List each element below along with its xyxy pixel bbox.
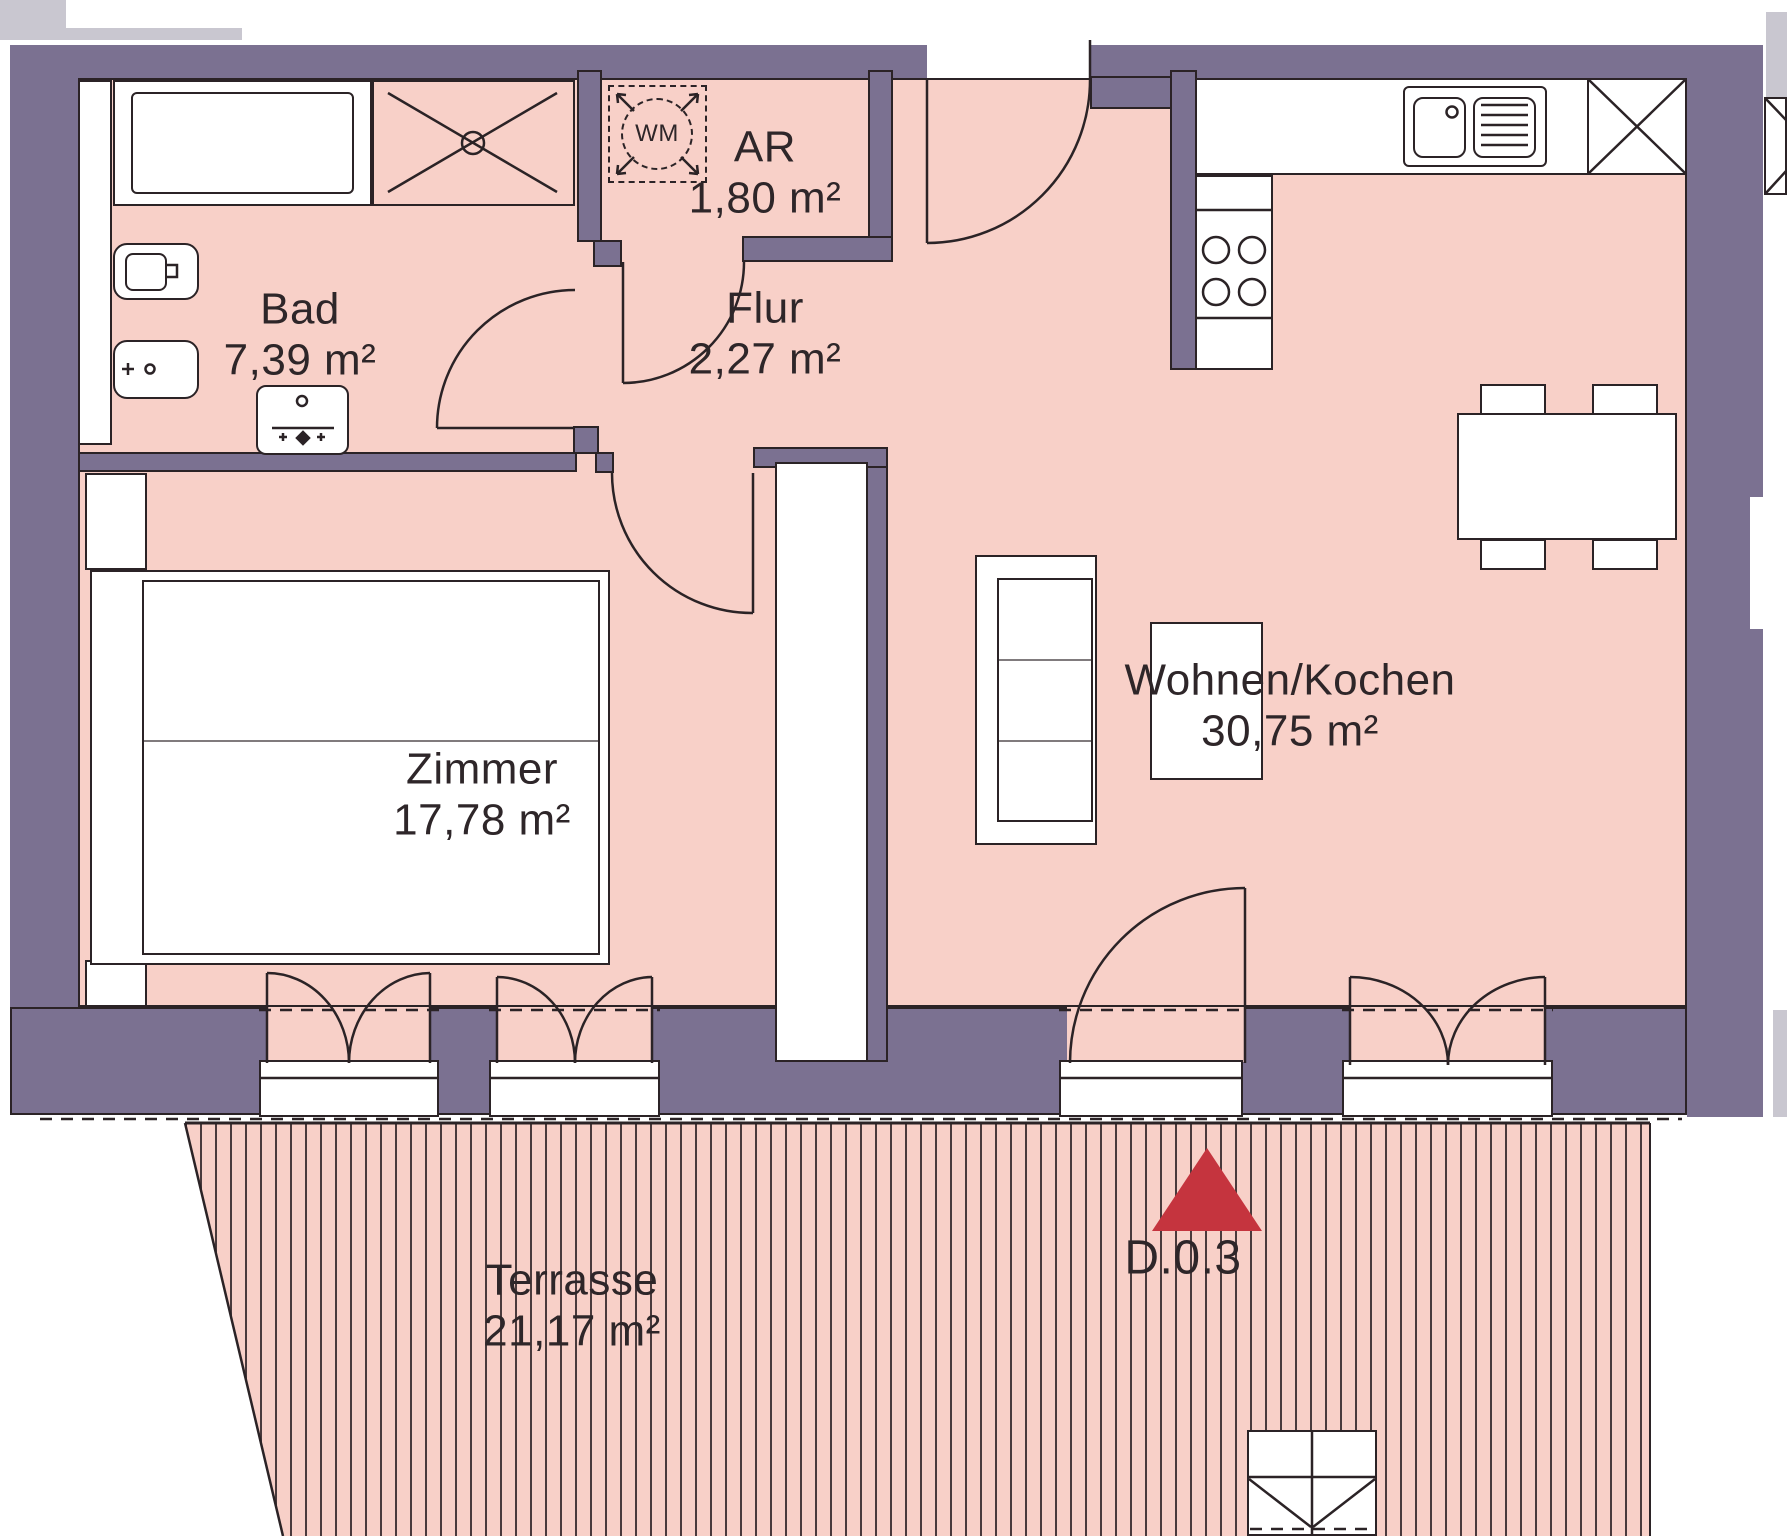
room-name: AR — [689, 122, 842, 173]
room-label-ar: AR 1,80 m² — [689, 122, 842, 223]
washing-machine-label: WM — [635, 120, 679, 148]
room-label-flur: Flur 2,27 m² — [689, 283, 842, 384]
unit-marker-triangle — [1152, 1148, 1262, 1231]
room-label-wohnen-kochen: Wohnen/Kochen 30,75 m² — [1124, 655, 1455, 756]
room-name: Flur — [689, 283, 842, 334]
room-area: 7,39 m² — [224, 335, 377, 386]
room-area: 21,17 m² — [483, 1306, 661, 1357]
room-area: 17,78 m² — [393, 795, 571, 846]
room-name: Terrasse — [483, 1255, 661, 1306]
room-area: 2,27 m² — [689, 334, 842, 385]
room-area: 1,80 m² — [689, 173, 842, 224]
room-label-bad: Bad 7,39 m² — [224, 284, 377, 385]
room-area: 30,75 m² — [1124, 706, 1455, 757]
floorplan-lines-svg — [0, 0, 1787, 1536]
room-name: Zimmer — [393, 744, 571, 795]
room-label-zimmer: Zimmer 17,78 m² — [393, 744, 571, 845]
room-name: Bad — [224, 284, 377, 335]
unit-label: D.0.3 — [1124, 1230, 1241, 1285]
room-label-terrasse: Terrasse 21,17 m² — [483, 1255, 661, 1356]
floor-plan: Bad 7,39 m² AR 1,80 m² Flur 2,27 m² Zimm… — [0, 0, 1787, 1536]
room-name: Wohnen/Kochen — [1124, 655, 1455, 706]
